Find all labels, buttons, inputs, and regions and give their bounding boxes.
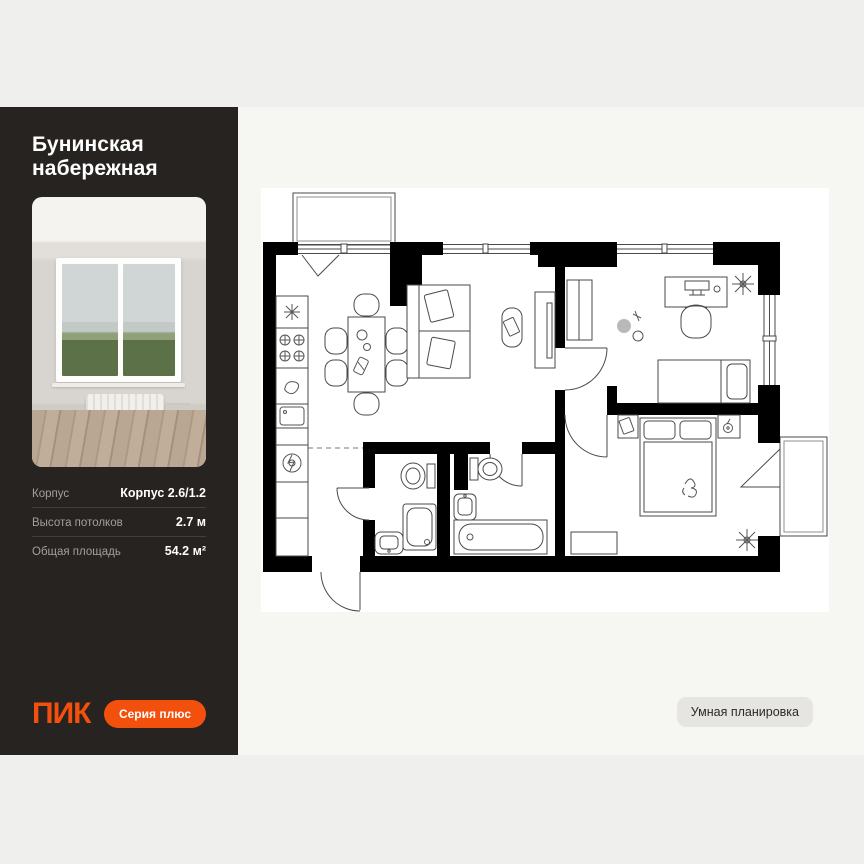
spec-list: Корпус Корпус 2.6/1.2 Высота потолков 2.… (32, 479, 206, 565)
sink-small-icon (375, 532, 403, 554)
double-bed (640, 418, 716, 516)
pik-logo: ПИК (32, 699, 90, 729)
bathroom-shower (375, 463, 436, 554)
rug-dot (617, 319, 631, 333)
balcony-right (741, 437, 827, 536)
sidebar-footer: ПИК Серия плюс (32, 699, 206, 729)
cutting-board-icon (285, 382, 299, 394)
spec-label: Высота потолков (32, 517, 123, 529)
plant-icon (732, 273, 754, 295)
plan-panel: Умная планировка (238, 107, 864, 755)
single-bed (658, 360, 750, 403)
toilet-icon-2 (470, 458, 502, 480)
desk (665, 277, 727, 307)
washing-machine-icon (283, 454, 301, 472)
smart-layout-button[interactable]: Умная планировка (677, 697, 813, 727)
toilet-icon (401, 463, 435, 489)
fridge-icon (284, 304, 300, 320)
sink-icon (280, 407, 304, 425)
bedroom-dresser (571, 532, 617, 554)
shower-icon (403, 504, 436, 550)
sofa (407, 285, 470, 378)
bathtub-icon (454, 520, 547, 554)
spec-row-area: Общая площадь 54.2 м² (32, 536, 206, 565)
spec-row-ceiling: Высота потолков 2.7 м (32, 507, 206, 536)
project-title: Бунинская набережная (32, 133, 206, 182)
balcony-top (293, 193, 395, 245)
bedroom (571, 415, 758, 554)
desk-chair (681, 305, 711, 338)
radiator-pipe (164, 403, 190, 405)
floor-plan-svg (261, 188, 829, 612)
window-pane-left (62, 264, 118, 376)
spec-value: 54.2 м² (165, 544, 206, 558)
floor-plan-image (261, 188, 829, 612)
series-plus-button[interactable]: Серия плюс (104, 700, 206, 728)
listing-card: Бунинская набережная Корпус Корпус 2.6/1… (0, 107, 864, 755)
side-table (502, 308, 522, 347)
sidebar: Бунинская набережная Корпус Корпус 2.6/1… (0, 107, 238, 755)
dining-table (325, 294, 408, 415)
apartment-photo (32, 197, 206, 467)
sink-icon-2 (454, 494, 476, 520)
nightstand-right (718, 415, 740, 438)
wood-floor (32, 410, 206, 467)
spec-row-korpus: Корпус Корпус 2.6/1.2 (32, 479, 206, 507)
stove-icon (280, 335, 304, 361)
spec-value: 2.7 м (176, 515, 206, 529)
photo-window (56, 258, 181, 382)
window-pane-right (123, 264, 175, 376)
window-sill (52, 383, 185, 387)
kitchen-counter (276, 296, 308, 556)
office-room (567, 273, 754, 403)
tv-console (535, 292, 555, 368)
spec-label: Общая площадь (32, 546, 121, 558)
spec-label: Корпус (32, 488, 69, 500)
plant-icon-2 (736, 529, 758, 551)
spec-value: Корпус 2.6/1.2 (120, 486, 206, 500)
